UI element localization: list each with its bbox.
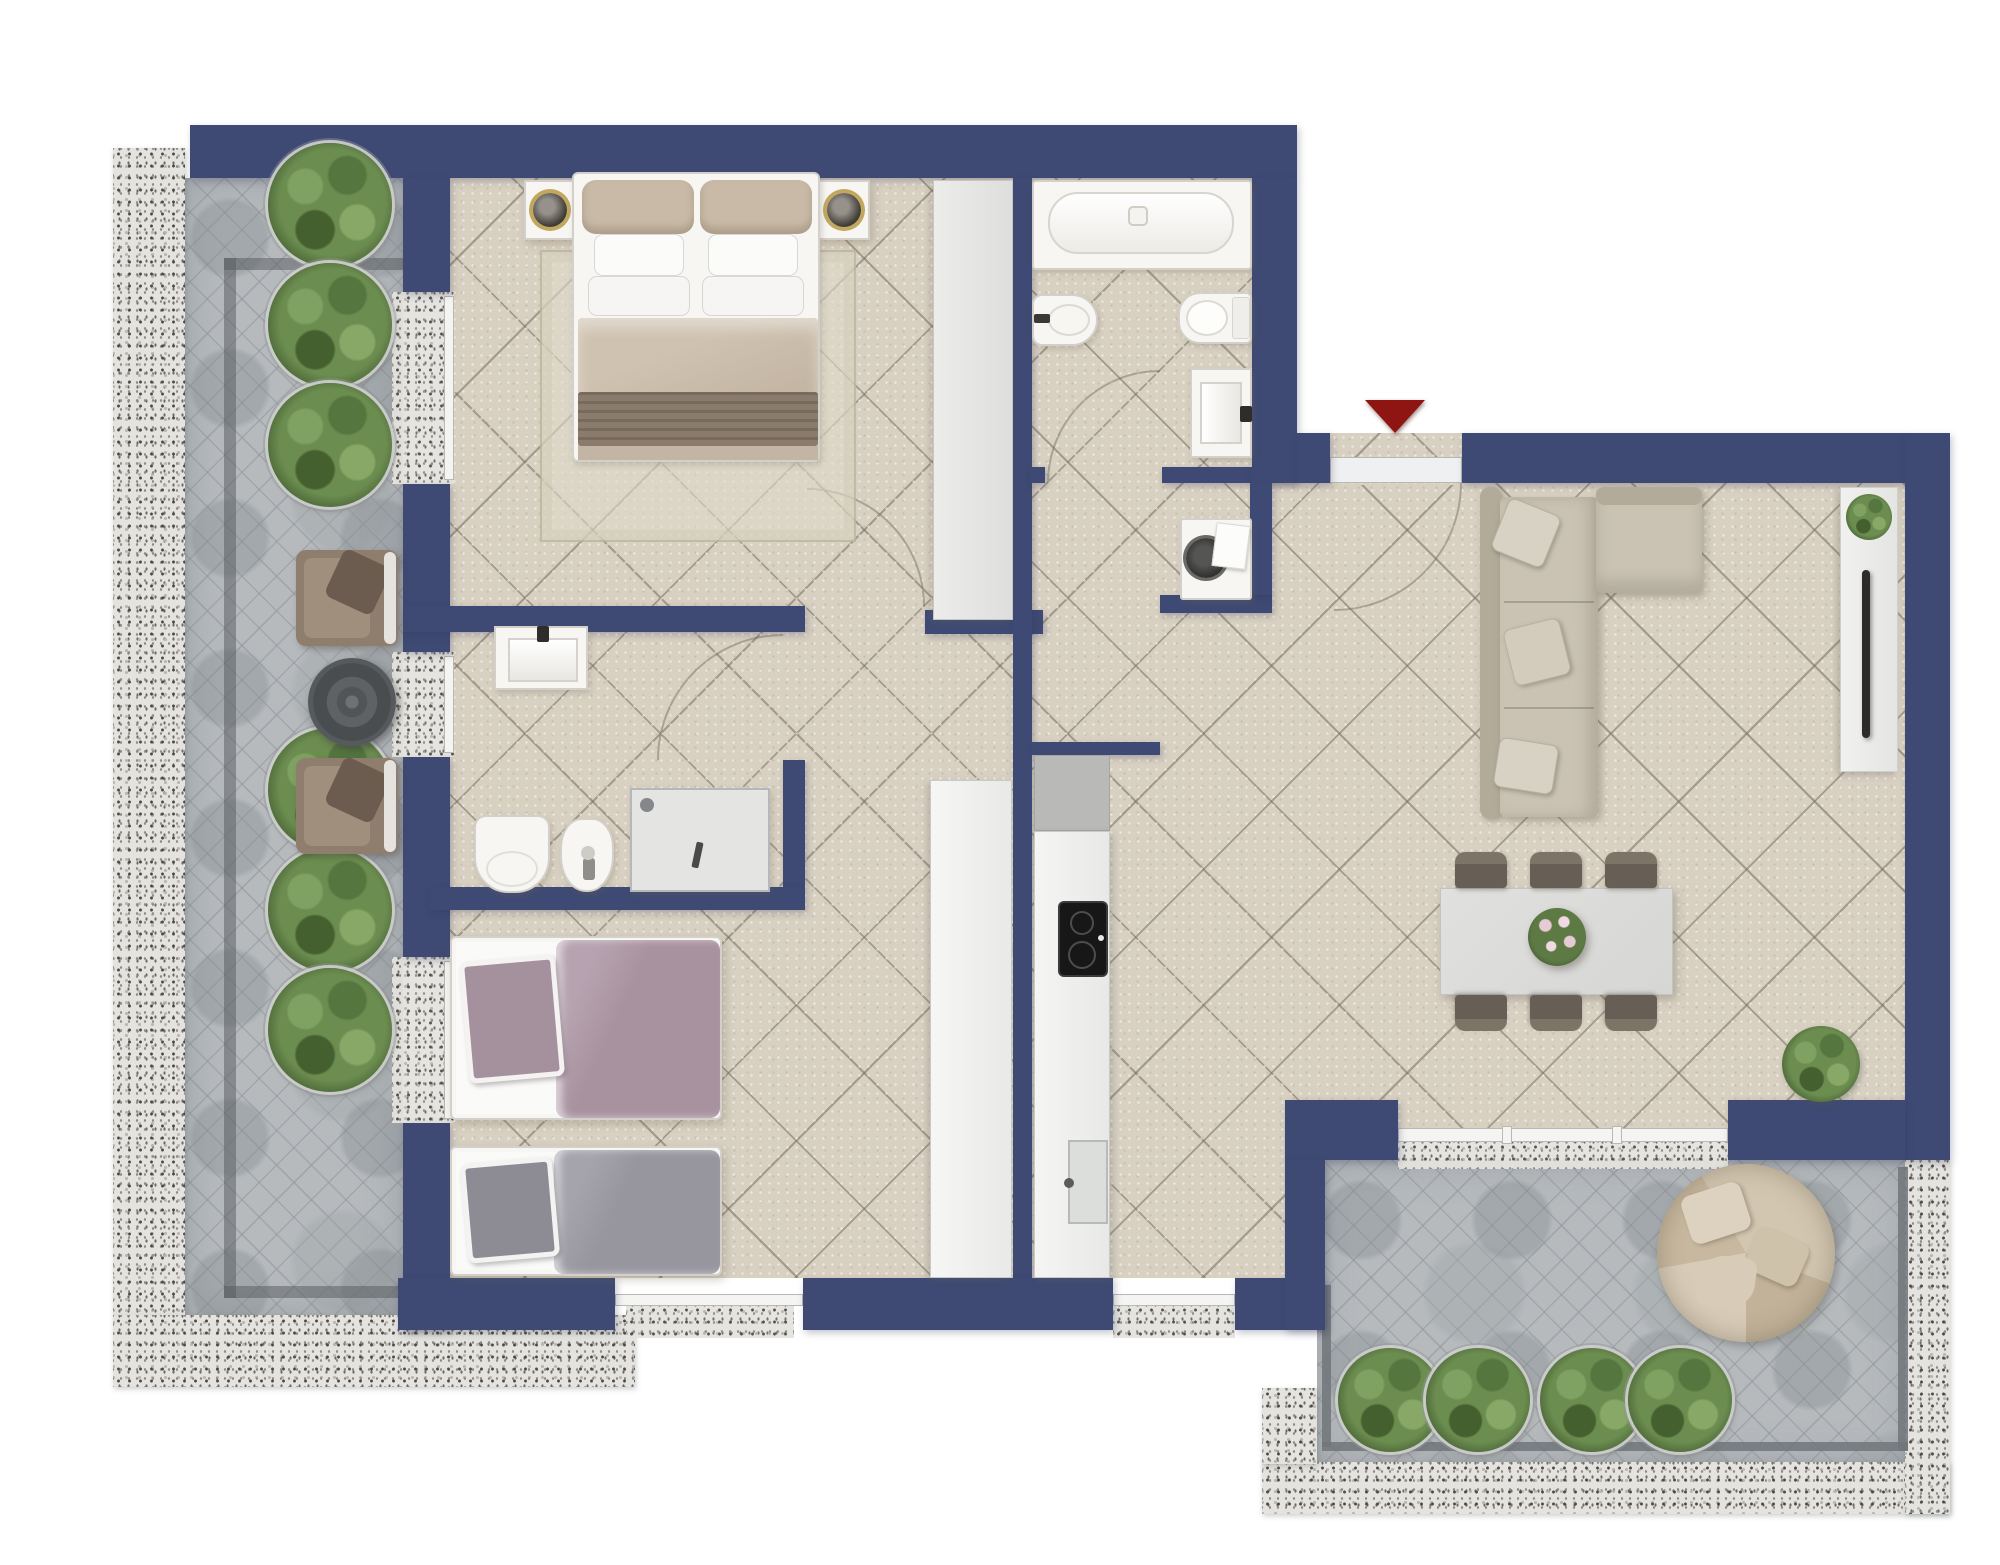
washbasin <box>1190 368 1252 458</box>
dining-chair <box>1605 852 1657 888</box>
dining-chair <box>1455 852 1507 888</box>
window-sill <box>444 296 454 480</box>
wall-bottom <box>398 1278 615 1330</box>
dining-chair <box>1455 995 1507 1031</box>
armchair-frame <box>384 760 396 852</box>
terrace-parapet <box>224 258 236 1298</box>
duvet <box>556 940 720 1118</box>
duvet <box>554 1150 720 1274</box>
planter-icon <box>268 848 392 972</box>
door-jamb <box>1502 1126 1512 1144</box>
cooktop <box>1060 903 1106 975</box>
sofa-cushion-line <box>1504 707 1594 709</box>
shower <box>630 788 770 892</box>
shower-head-icon <box>640 798 654 812</box>
folded-towel <box>1211 522 1250 570</box>
kitchen-sink <box>1068 1140 1108 1224</box>
window-threshold <box>1398 1141 1728 1169</box>
wall-living-south-right <box>1728 1100 1905 1160</box>
wall-living-north <box>1462 433 1905 483</box>
window-sill <box>1113 1294 1235 1306</box>
pillow <box>459 954 565 1084</box>
planter-icon <box>268 383 392 507</box>
burner-icon <box>1068 941 1096 969</box>
wall-central-vertical <box>1013 178 1032 1278</box>
tv <box>1862 570 1870 738</box>
wall-east <box>1905 433 1950 1160</box>
bidet <box>1032 294 1098 346</box>
window-threshold <box>626 1304 794 1338</box>
sofa-pillow <box>1492 737 1559 796</box>
pillow <box>588 276 690 316</box>
knob-icon <box>1098 935 1104 941</box>
sofa-chaise-back <box>1596 487 1702 505</box>
single-bed-2 <box>450 1146 722 1276</box>
floor-plan <box>0 0 2000 1565</box>
toilet-seat <box>1186 300 1228 336</box>
armchair-frame <box>384 552 396 644</box>
toilet <box>1178 292 1252 344</box>
door-jamb <box>1612 1126 1622 1144</box>
basin-bowl <box>1200 382 1242 444</box>
entrance-threshold <box>1330 457 1462 483</box>
bidet-faucet-icon <box>583 858 595 880</box>
pillow <box>702 276 804 316</box>
faucet-icon <box>1064 1178 1074 1188</box>
wall-kitchen-branch <box>1032 742 1160 755</box>
washing-machine <box>1180 518 1252 600</box>
window-sill <box>1398 1128 1728 1142</box>
pillow <box>594 234 684 276</box>
coffee-table-icon <box>308 658 396 746</box>
bidet-faucet-icon <box>1034 314 1050 323</box>
wall-west <box>403 757 450 957</box>
potted-plant-icon <box>1782 1026 1860 1102</box>
wardrobe-hall <box>930 780 1012 1278</box>
sectional-sofa <box>1480 483 1710 823</box>
single-bed-1 <box>450 936 722 1120</box>
terrace-armchair <box>296 758 398 854</box>
entrance-arrow-icon <box>1365 400 1425 433</box>
daybed-pillow <box>1694 1252 1759 1312</box>
dining-chair <box>1530 995 1582 1031</box>
faucet-icon <box>1240 406 1252 422</box>
burner-icon <box>1070 911 1094 935</box>
window-sill <box>615 1294 803 1306</box>
faucet-icon <box>537 626 549 642</box>
terrace-bottom-granite-bottom <box>1262 1462 1950 1514</box>
terrace-bottom-granite-right <box>1905 1160 1950 1514</box>
terrace-railing <box>1898 1167 1908 1451</box>
bidet <box>560 818 614 892</box>
toilet <box>474 815 550 893</box>
wall-entry-vertical <box>1252 178 1297 483</box>
headboard-cushion <box>582 180 694 234</box>
double-bed <box>572 172 820 462</box>
window-threshold <box>1113 1304 1235 1338</box>
washbasin <box>494 626 588 690</box>
bathtub <box>1032 180 1252 270</box>
table-lamp-icon <box>533 193 567 227</box>
headboard-cushion <box>700 180 812 234</box>
potted-plant-icon <box>1846 494 1892 540</box>
round-daybed <box>1657 1164 1835 1342</box>
planter-icon <box>268 143 392 267</box>
basin-bowl <box>508 638 578 682</box>
pillow <box>708 234 798 276</box>
bathtub-drain <box>1128 206 1148 226</box>
planter-icon <box>268 263 392 387</box>
wall-living-south-left <box>1285 1100 1398 1160</box>
terrace-bottom-granite-left <box>1262 1388 1317 1464</box>
wall-bathroom2-east <box>783 760 805 887</box>
wall-bathroom1-south-stub <box>1030 467 1045 483</box>
foot-sheet <box>578 446 818 460</box>
wall-entry-top-left <box>1297 433 1330 483</box>
terrace-left-granite-border <box>113 148 185 1315</box>
blanket <box>578 392 818 446</box>
window-sill <box>444 656 454 753</box>
daybed-pillow <box>1679 1180 1753 1247</box>
bidet-bowl <box>1048 304 1090 336</box>
dining-chair <box>1530 852 1582 888</box>
pillow <box>460 1156 560 1264</box>
flower-centerpiece-icon <box>1528 908 1586 966</box>
planter-icon <box>1628 1348 1732 1452</box>
kitchen-upper-cabinet <box>1034 755 1110 831</box>
wall-west <box>403 178 450 292</box>
toilet-seat-line <box>486 851 538 887</box>
planter-icon <box>268 968 392 1092</box>
sofa-cushion-line <box>1504 601 1594 603</box>
toilet-tank <box>1232 297 1250 339</box>
wall-bottom <box>803 1278 1113 1330</box>
wall-laundry-right <box>1250 483 1272 595</box>
wall-jog <box>1285 1160 1325 1330</box>
terrace-armchair <box>296 550 398 646</box>
planter-icon <box>1426 1348 1530 1452</box>
bidet-drain <box>581 846 595 860</box>
table-lamp-icon <box>827 193 861 227</box>
wall-bedroom-south <box>403 606 805 632</box>
shower-handle-icon <box>691 842 703 869</box>
wardrobe-bedroom <box>933 180 1013 620</box>
dining-chair <box>1605 995 1657 1031</box>
